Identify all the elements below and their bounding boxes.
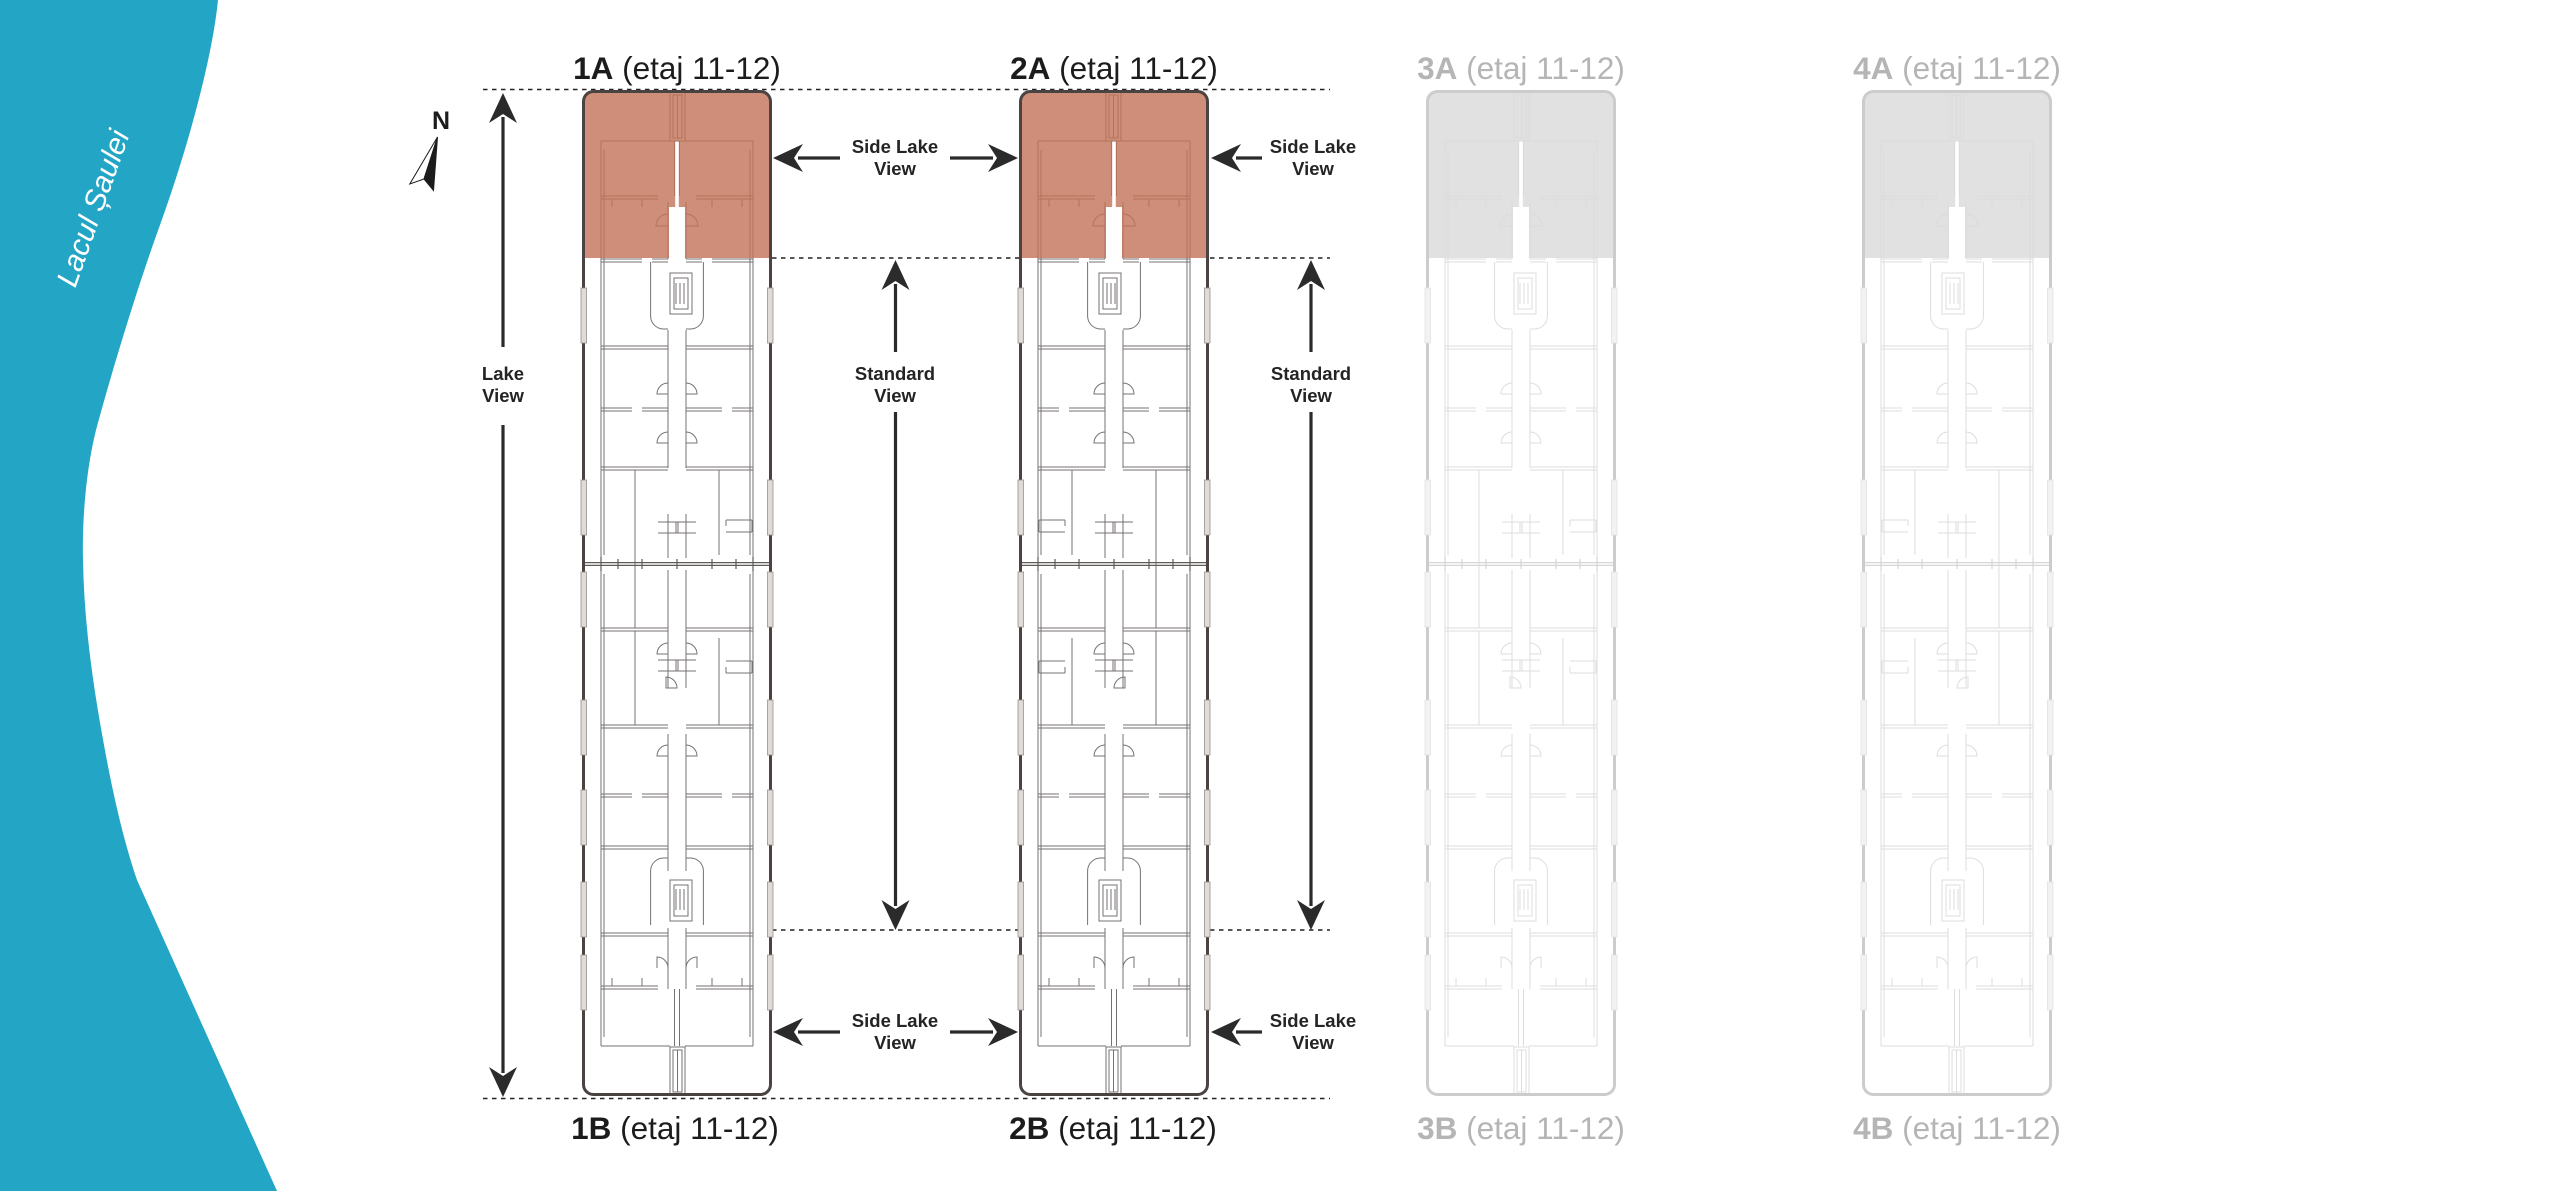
svg-text:1A (etaj 11-12): 1A (etaj 11-12): [573, 50, 781, 86]
svg-text:4A (etaj 11-12): 4A (etaj 11-12): [1853, 50, 2061, 86]
svg-text:View: View: [482, 385, 524, 406]
svg-text:View: View: [1292, 158, 1334, 179]
svg-text:Side Lake: Side Lake: [1270, 1010, 1356, 1031]
svg-text:Standard: Standard: [855, 363, 935, 384]
svg-text:View: View: [874, 1032, 916, 1053]
svg-text:View: View: [1292, 1032, 1334, 1053]
svg-text:3B (etaj 11-12): 3B (etaj 11-12): [1417, 1110, 1625, 1146]
svg-text:2B (etaj 11-12): 2B (etaj 11-12): [1009, 1110, 1217, 1146]
svg-text:Side Lake: Side Lake: [852, 136, 938, 157]
svg-text:View: View: [1290, 385, 1332, 406]
svg-text:1B (etaj 11-12): 1B (etaj 11-12): [571, 1110, 779, 1146]
svg-text:4B (etaj 11-12): 4B (etaj 11-12): [1853, 1110, 2061, 1146]
svg-text:2A (etaj 11-12): 2A (etaj 11-12): [1010, 50, 1218, 86]
svg-text:3A (etaj 11-12): 3A (etaj 11-12): [1417, 50, 1625, 86]
svg-text:Standard: Standard: [1271, 363, 1351, 384]
svg-text:Lake: Lake: [482, 363, 524, 384]
svg-text:View: View: [874, 385, 916, 406]
svg-text:Side Lake: Side Lake: [852, 1010, 938, 1031]
svg-text:View: View: [874, 158, 916, 179]
svg-text:N: N: [432, 107, 450, 135]
svg-text:Side Lake: Side Lake: [1270, 136, 1356, 157]
